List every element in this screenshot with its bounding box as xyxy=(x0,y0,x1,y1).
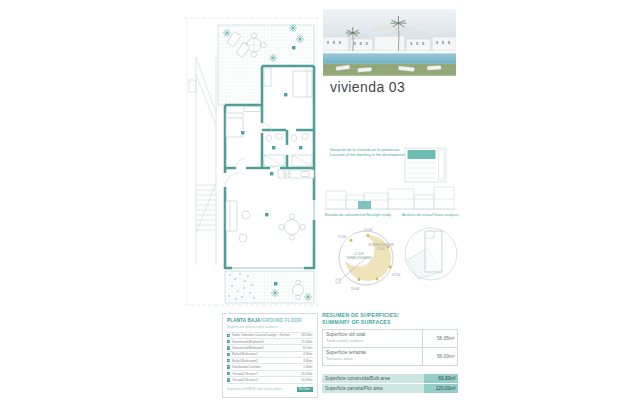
ground-floor-surfaces-table: PLANTA BAJA/GROUND FLOOR Superficies úti… xyxy=(222,313,318,398)
value-cell: 56.05m² xyxy=(422,330,458,347)
row-number-chip: 06 xyxy=(227,365,230,368)
table-row: Superficie útil total Total useful surfa… xyxy=(323,330,457,347)
plan-sheet: PLANTA BAJA/GROUND FLOOR Superficies úti… xyxy=(0,0,640,412)
row-number-chip: 03 xyxy=(227,346,230,349)
highlighted-unit-elevation xyxy=(358,201,371,209)
value-cell: 120.00m² xyxy=(424,384,459,393)
terrace-rear xyxy=(225,271,314,303)
highlighted-unit xyxy=(408,150,436,159)
total-value-badge: 56.05m² xyxy=(297,387,313,392)
row-number-chip: 08 xyxy=(227,378,230,381)
value-cell: 69.30m² xyxy=(424,374,459,383)
common-stairs xyxy=(189,57,216,265)
sun-label-morning: 07:00 xyxy=(392,273,401,277)
unit-outline xyxy=(425,231,442,272)
value-cell: 56.00m² xyxy=(422,348,458,365)
plan-table-title: PLANTA BAJA/GROUND FLOOR xyxy=(227,318,313,323)
table-row: Superficie parcela/Plot area 120.00m² xyxy=(322,384,458,393)
plan-table-rows: 01Salón Comedor-Cocina/Lounge - Kitchen2… xyxy=(227,332,313,384)
table-row: Superficie terrazas Terraces area 56.00m… xyxy=(323,347,457,365)
svg-text:21 DIC: 21 DIC xyxy=(377,247,386,251)
key-plan-diagram xyxy=(404,146,450,184)
row-number-chip: 07 xyxy=(227,372,230,375)
row-number-chip: 04 xyxy=(227,353,230,356)
sun-label-night: 21:00 xyxy=(351,287,360,291)
plan-table-subtitle: Superficies útiles/useful surfaces xyxy=(227,325,313,329)
views-study-caption: Análisis de vistas/Views analysis xyxy=(402,212,458,217)
views-analysis-diagram xyxy=(404,218,460,298)
elevation-drawing xyxy=(324,183,456,211)
sun-label-evening: 17:00 xyxy=(338,235,347,239)
table-row: 08Terraza2/Terrace210.20m² xyxy=(227,377,313,383)
row-number-chip: 01 xyxy=(227,334,230,337)
floor-plan-drawing xyxy=(180,5,320,311)
buildings xyxy=(323,36,456,51)
row-number-chip: 05 xyxy=(227,359,230,362)
sun-study-caption: Estudio de soleamiento/Sunlight study xyxy=(325,212,391,217)
row-number-chip: 02 xyxy=(227,340,230,343)
north-marker xyxy=(336,279,340,283)
summary-table: Superficie útil total Total useful surfa… xyxy=(322,329,458,366)
development-render-photo xyxy=(323,9,456,76)
summary-title: RESUMEN DE SUPERFICIES/ SUMMARY OF SURFA… xyxy=(322,312,458,326)
svg-text:VERANO/SUMMER: VERANO/SUMMER xyxy=(346,256,371,260)
built-plot-table: Superficie construida/Built area 69.30m²… xyxy=(322,374,458,394)
location-caption: Situación de la vivienda en la promoción… xyxy=(330,147,405,158)
plan-table-total-row: Superficie útil PB/GF total useful surfa… xyxy=(227,387,313,392)
summary-of-surfaces: RESUMEN DE SUPERFICIES/ SUMMARY OF SURFA… xyxy=(322,312,458,395)
room-marker-terrace1 xyxy=(292,46,295,49)
table-row: Superficie construida/Built area 69.30m² xyxy=(322,374,458,383)
sun-path-diagram: 12:00 17:00 21:00 07:00 21 JUN VERANO/SU… xyxy=(328,218,404,298)
sun-label-noon: 12:00 xyxy=(364,228,373,232)
page-title: vivienda 03 xyxy=(330,79,405,95)
room-marker-terrace2 xyxy=(274,282,277,285)
